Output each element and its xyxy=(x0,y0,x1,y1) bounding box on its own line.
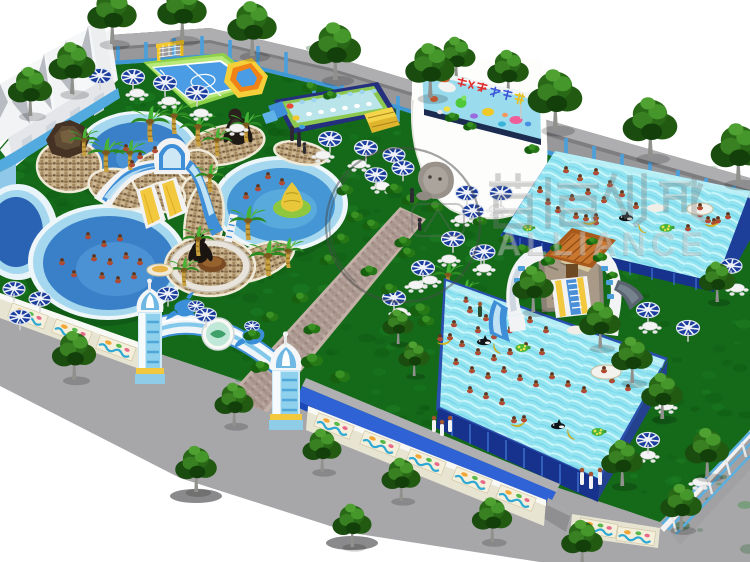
svg-text:ALLIANCE: ALLIANCE xyxy=(497,225,709,263)
